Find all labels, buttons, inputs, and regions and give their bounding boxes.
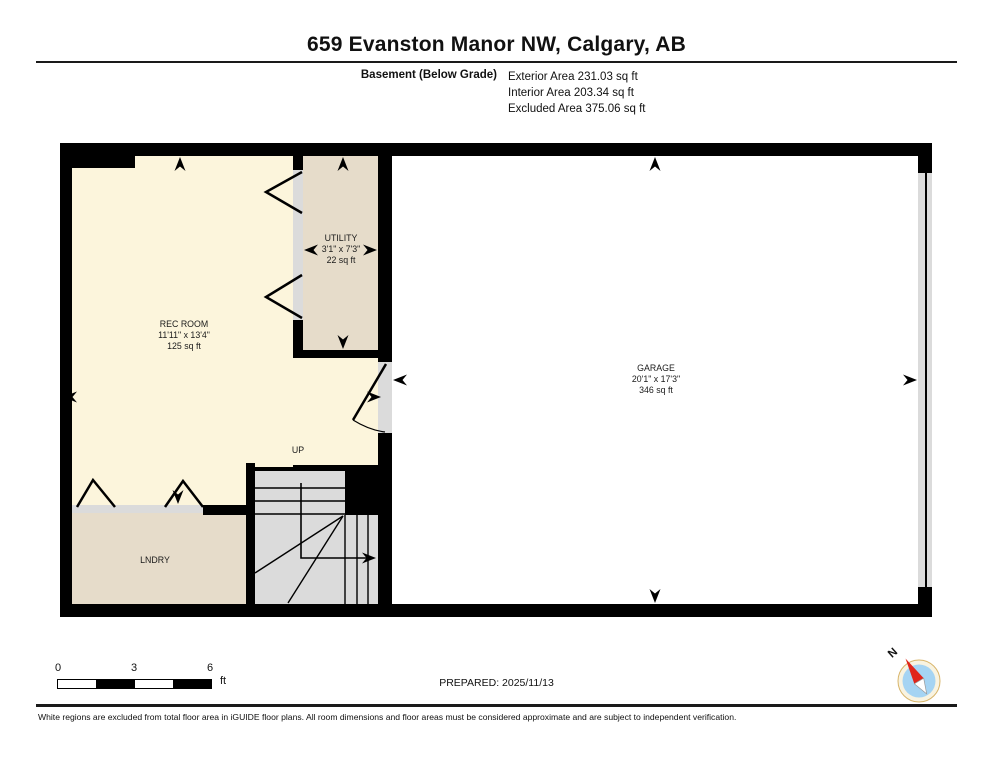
laundry-label: LNDRY <box>140 555 170 566</box>
floorplan-page: 659 Evanston Manor NW, Calgary, AB Basem… <box>0 0 993 768</box>
room-area: 125 sq ft <box>158 341 210 352</box>
stairs-up-label: UP <box>292 445 304 456</box>
stairs-floor-lower <box>345 515 378 604</box>
excluded-area: Excluded Area 375.06 sq ft <box>508 101 645 117</box>
scale-tick: 6 <box>207 662 213 674</box>
rec-room-hall-floor <box>293 358 378 465</box>
prepared-date: PREPARED: 2025/11/13 <box>0 677 993 689</box>
room-dimensions: 3'1" x 7'3" <box>322 244 360 255</box>
laundry-door-opening <box>72 505 203 513</box>
room-name: UTILITY <box>322 233 360 244</box>
area-summary: Exterior Area 231.03 sq ft Interior Area… <box>508 69 645 117</box>
room-name: LNDRY <box>140 555 170 566</box>
room-area: 22 sq ft <box>322 255 360 266</box>
wall-stairs-top-edge <box>255 467 345 471</box>
room-name: REC ROOM <box>158 319 210 330</box>
disclaimer-text: White regions are excluded from total fl… <box>38 712 736 722</box>
compass-north-label: N <box>886 646 900 660</box>
floor-label: Basement (Below Grade) <box>0 69 497 81</box>
compass-icon: N <box>886 646 940 702</box>
wall-notch-topleft <box>60 143 135 168</box>
interior-area: Interior Area 203.34 sq ft <box>508 85 645 101</box>
garage-label: GARAGE 20'1" x 17'3" 346 sq ft <box>632 363 680 396</box>
direction-label: UP <box>292 445 304 456</box>
room-dimensions: 20'1" x 17'3" <box>632 374 680 385</box>
stairs-floor-upper <box>255 471 345 604</box>
scale-tick: 3 <box>131 662 137 674</box>
garage-overhead-door-line <box>925 173 927 587</box>
wall-stairs-left <box>246 463 255 607</box>
header-divider <box>36 61 957 63</box>
utility-label: UTILITY 3'1" x 7'3" 22 sq ft <box>322 233 360 266</box>
wall-laundry-right <box>203 505 255 515</box>
garage-entry-door-opening <box>378 362 392 433</box>
room-dimensions: 11'11" x 13'4" <box>158 330 210 341</box>
footer-divider <box>36 704 957 707</box>
room-name: GARAGE <box>632 363 680 374</box>
room-area: 346 sq ft <box>632 385 680 396</box>
rec-room-label: REC ROOM 11'11" x 13'4" 125 sq ft <box>158 319 210 352</box>
scale-tick: 0 <box>55 662 61 674</box>
page-title: 659 Evanston Manor NW, Calgary, AB <box>0 33 993 57</box>
exterior-area: Exterior Area 231.03 sq ft <box>508 69 645 85</box>
utility-door-opening <box>293 170 303 320</box>
